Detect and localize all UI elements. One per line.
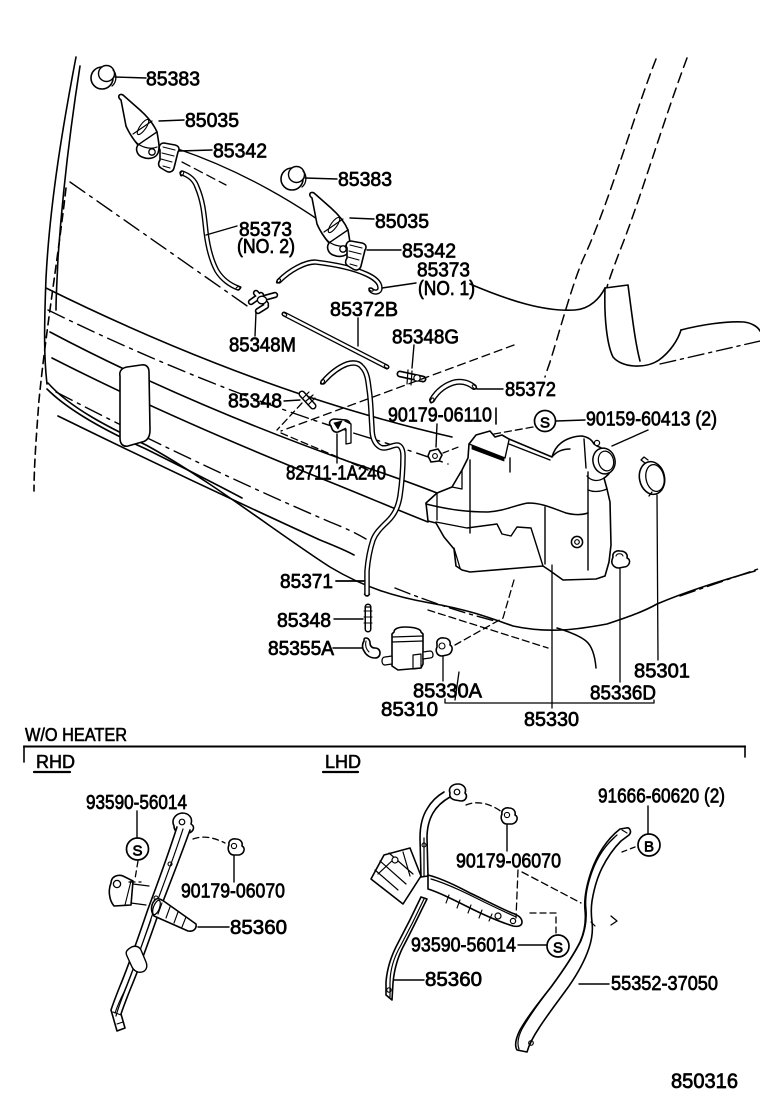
svg-text:85301: 85301 bbox=[634, 660, 690, 683]
svg-text:90179-06070: 90179-06070 bbox=[181, 880, 285, 903]
svg-text:85336D: 85336D bbox=[590, 682, 656, 705]
svg-text:85360: 85360 bbox=[230, 916, 287, 939]
svg-text:(NO. 1): (NO. 1) bbox=[418, 277, 475, 300]
svg-text:85348M: 85348M bbox=[229, 334, 296, 357]
svg-text:85310: 85310 bbox=[381, 698, 438, 721]
svg-text:85383: 85383 bbox=[146, 68, 200, 91]
svg-text:S: S bbox=[540, 415, 550, 432]
svg-text:85383: 85383 bbox=[338, 168, 392, 191]
svg-text:85360: 85360 bbox=[425, 968, 482, 991]
svg-text:85342: 85342 bbox=[213, 140, 267, 163]
svg-text:85371: 85371 bbox=[280, 570, 333, 593]
svg-text:W/O HEATER: W/O HEATER bbox=[25, 725, 127, 745]
svg-text:B: B bbox=[644, 839, 654, 856]
svg-text:90159-60413 (2): 90159-60413 (2) bbox=[586, 408, 717, 431]
svg-text:85348: 85348 bbox=[277, 609, 331, 632]
svg-text:850316: 850316 bbox=[671, 1069, 738, 1093]
svg-text:85372B: 85372B bbox=[330, 298, 398, 321]
svg-text:85348: 85348 bbox=[228, 390, 282, 413]
svg-text:S: S bbox=[553, 940, 563, 957]
svg-text:85035: 85035 bbox=[185, 109, 239, 132]
svg-text:55352-37050: 55352-37050 bbox=[611, 972, 718, 995]
svg-text:RHD: RHD bbox=[36, 752, 75, 772]
svg-text:85372: 85372 bbox=[505, 378, 556, 401]
svg-text:85035: 85035 bbox=[375, 210, 429, 233]
svg-text:85330: 85330 bbox=[524, 708, 579, 731]
svg-text:93590-56014: 93590-56014 bbox=[411, 934, 516, 957]
svg-text:S: S bbox=[132, 843, 142, 860]
svg-text:90179-06070: 90179-06070 bbox=[456, 850, 561, 873]
svg-text:(NO. 2): (NO. 2) bbox=[237, 235, 295, 258]
svg-text:85348G: 85348G bbox=[392, 326, 459, 349]
svg-text:LHD: LHD bbox=[325, 752, 361, 772]
svg-text:85355A: 85355A bbox=[268, 637, 334, 660]
svg-text:82711-1A240: 82711-1A240 bbox=[286, 462, 386, 485]
svg-text:93590-56014: 93590-56014 bbox=[86, 791, 187, 814]
svg-text:91666-60620 (2): 91666-60620 (2) bbox=[598, 785, 725, 808]
svg-text:90179-06110: 90179-06110 bbox=[388, 404, 492, 427]
